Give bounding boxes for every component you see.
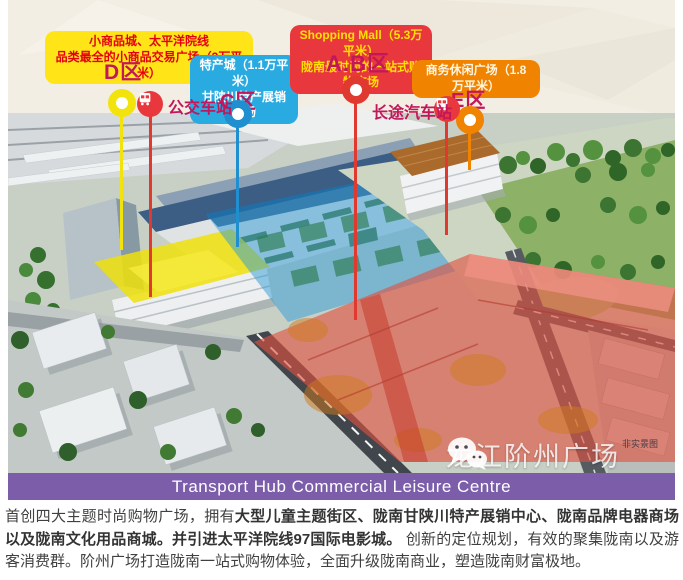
zone-ab-callout-line xyxy=(354,103,357,320)
zone-d-label: D区 xyxy=(104,56,142,86)
wechat-icon xyxy=(446,435,488,471)
zone-e-marker xyxy=(456,106,484,134)
banner: Transport Hub Commercial Leisure Centre xyxy=(8,473,675,500)
description-seg1: 首创四大主题时尚购物广场，拥有 xyxy=(5,508,235,525)
zone-ab-marker xyxy=(342,76,370,104)
zone-d-callout-line1: 小商品城、太平洋院线 xyxy=(53,34,245,50)
watermark: 龙江阶州广场 非实景图 xyxy=(446,435,658,474)
zone-c-callout-line xyxy=(236,127,239,247)
page: { "graphic": { "banner": { "title": "Tra… xyxy=(0,0,683,580)
bus-glyph xyxy=(137,91,153,107)
banner-title: Transport Hub Commercial Leisure Centre xyxy=(172,477,511,497)
bus-stop-label: 公交车站 xyxy=(168,94,232,118)
description-paragraph: 首创四大主题时尚购物广场，拥有大型儿童主题街区、陇南甘陕川特产展销中心、陇南品牌… xyxy=(0,501,683,574)
watermark-note: 非实景图 xyxy=(622,437,658,450)
promo-graphic: 小商品城、太平洋院线 品类最全的小商品交易广场（3万平米） 特产城（1.1万平米… xyxy=(8,0,675,500)
bus-stop-callout-line xyxy=(149,116,152,297)
zone-d-marker xyxy=(108,89,136,117)
zone-ab-label: A.B区 xyxy=(326,46,390,78)
coach-station-callout-line xyxy=(445,121,448,235)
coach-station-label: 长途汽车站 xyxy=(372,99,452,123)
zone-d-callout-line xyxy=(120,116,123,250)
bus-stop-icon xyxy=(137,91,163,117)
zone-e-callout-line xyxy=(468,133,471,170)
